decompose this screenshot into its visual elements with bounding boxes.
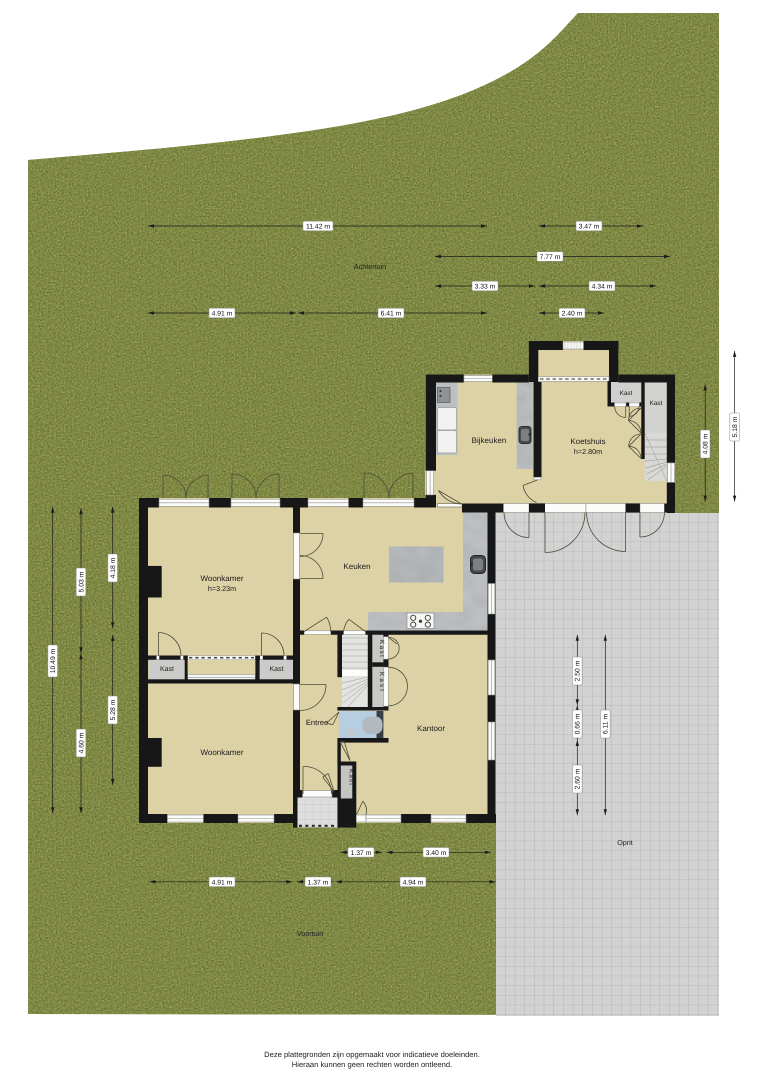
svg-text:4.94 m: 4.94 m xyxy=(403,879,424,886)
svg-text:Oprit: Oprit xyxy=(617,838,633,847)
svg-text:h=3.23m: h=3.23m xyxy=(208,584,236,593)
svg-text:4.91 m: 4.91 m xyxy=(212,311,233,318)
svg-text:Deze plattegronden zijn opgema: Deze plattegronden zijn opgemaakt voor i… xyxy=(264,1050,480,1059)
svg-text:Woonkamer: Woonkamer xyxy=(201,748,244,757)
svg-text:1.37 m: 1.37 m xyxy=(308,879,329,886)
svg-text:Entree: Entree xyxy=(306,718,328,727)
svg-text:7.77 m: 7.77 m xyxy=(540,254,561,261)
svg-text:1.37 m: 1.37 m xyxy=(351,850,372,857)
svg-text:6.11 m: 6.11 m xyxy=(603,714,610,735)
svg-text:3.33 m: 3.33 m xyxy=(475,284,496,291)
svg-text:2.50 m: 2.50 m xyxy=(575,660,582,681)
svg-text:Koetshuis: Koetshuis xyxy=(570,437,605,446)
svg-text:4.91 m: 4.91 m xyxy=(212,879,233,886)
svg-text:10.49 m: 10.49 m xyxy=(50,648,57,673)
svg-text:h=2.80m: h=2.80m xyxy=(574,447,602,456)
svg-text:6.41 m: 6.41 m xyxy=(381,311,402,318)
svg-text:4.60 m: 4.60 m xyxy=(78,732,85,753)
svg-text:11.42 m: 11.42 m xyxy=(306,224,330,231)
svg-text:Kantoor: Kantoor xyxy=(417,724,445,733)
svg-text:0.66 m: 0.66 m xyxy=(575,713,582,734)
svg-text:4.34 m: 4.34 m xyxy=(592,284,613,291)
svg-text:5.18 m: 5.18 m xyxy=(732,416,739,437)
svg-text:Voortuin: Voortuin xyxy=(297,929,323,938)
svg-text:Kast: Kast xyxy=(269,666,283,673)
svg-text:3.47 m: 3.47 m xyxy=(579,224,600,231)
svg-text:Bijkeuken: Bijkeuken xyxy=(472,436,507,445)
svg-text:Kast: Kast xyxy=(620,390,633,397)
svg-text:2.40 m: 2.40 m xyxy=(562,311,583,318)
svg-text:5.03 m: 5.03 m xyxy=(78,571,85,592)
svg-text:Kast: Kast xyxy=(348,769,355,786)
svg-text:Kast: Kast xyxy=(378,640,385,658)
svg-text:5.28 m: 5.28 m xyxy=(110,699,117,720)
svg-text:2.60 m: 2.60 m xyxy=(575,768,582,789)
svg-text:Woonkamer: Woonkamer xyxy=(201,574,244,583)
svg-text:3.40 m: 3.40 m xyxy=(426,850,447,857)
svg-text:Kast: Kast xyxy=(650,400,663,407)
svg-text:Hieraan kunnen geen rechten wo: Hieraan kunnen geen rechten worden ontle… xyxy=(292,1060,452,1069)
svg-text:Achtertuin: Achtertuin xyxy=(354,262,386,271)
svg-text:Keuken: Keuken xyxy=(343,562,370,571)
svg-text:Kast: Kast xyxy=(378,672,385,693)
svg-text:4.18 m: 4.18 m xyxy=(110,557,117,578)
svg-text:4.08 m: 4.08 m xyxy=(703,433,710,454)
svg-text:Kast: Kast xyxy=(160,666,174,673)
